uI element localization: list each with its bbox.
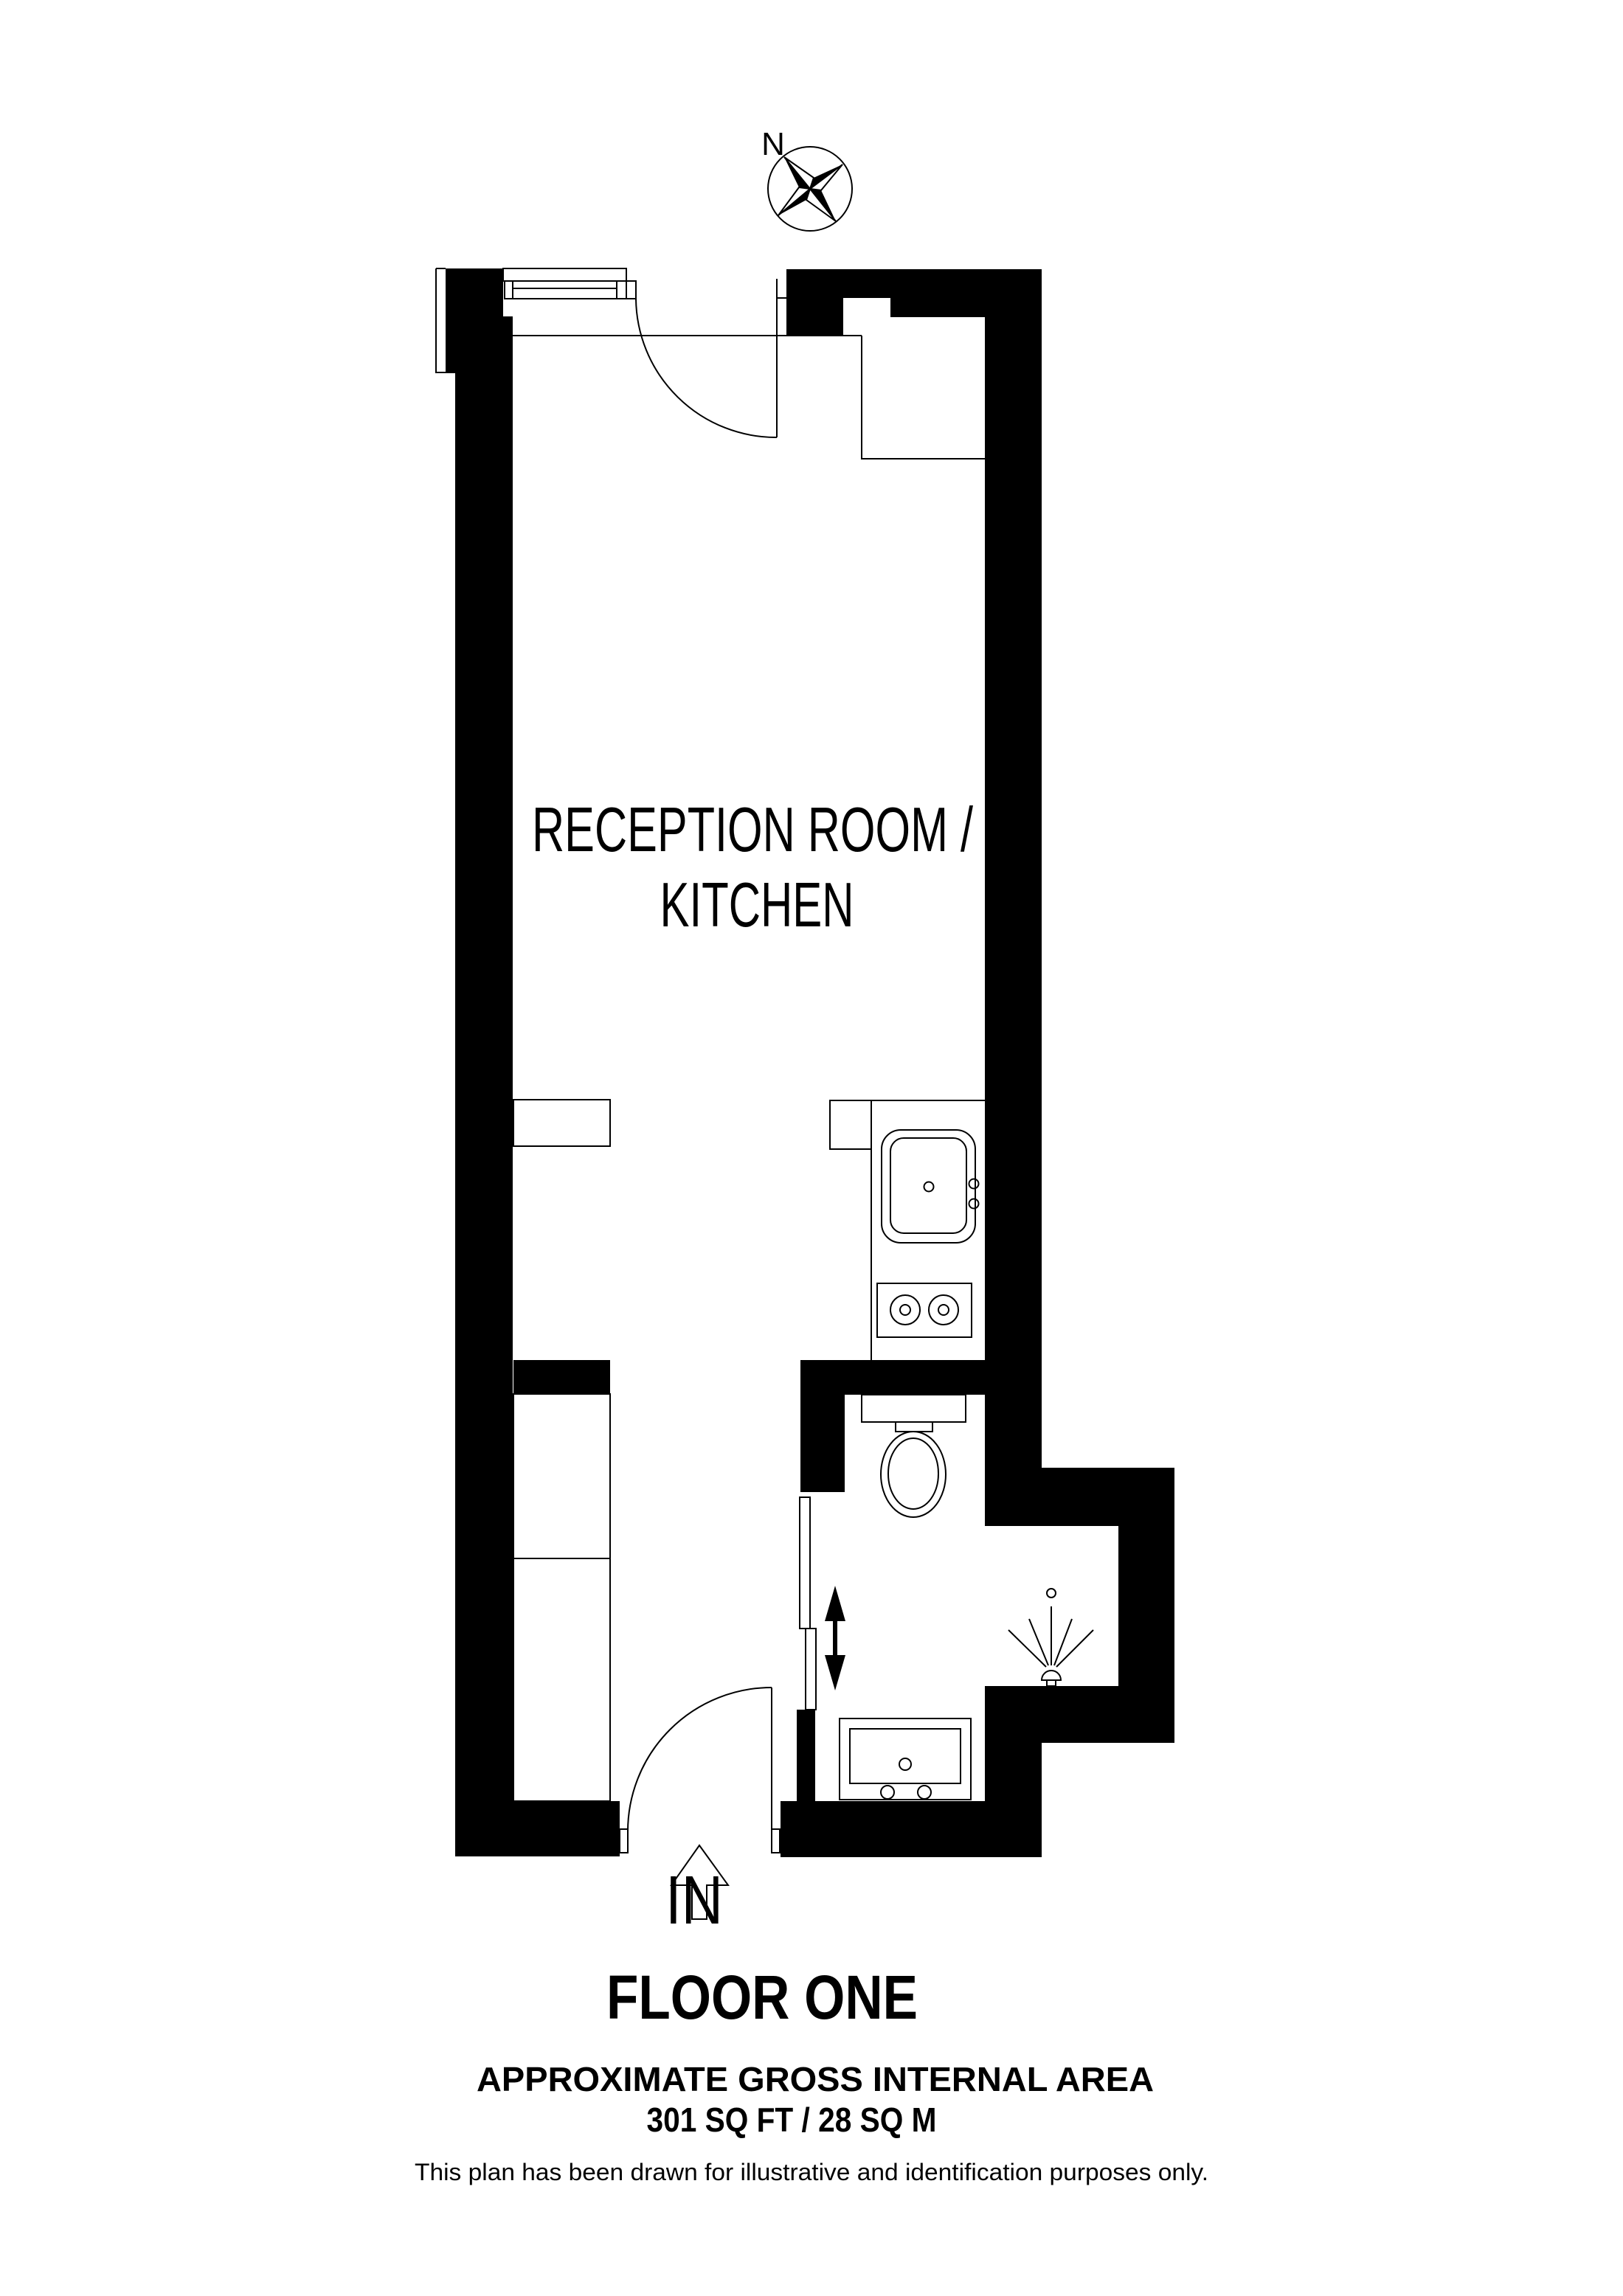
door-jamb [620, 1829, 628, 1853]
wall-wc-left-column [800, 1395, 845, 1492]
sliding-door [800, 1497, 845, 1710]
area-heading: APPROXIMATE GROSS INTERNAL AREA [477, 2060, 1154, 2098]
compass-north-label: N [761, 126, 785, 162]
floor-title: FLOOR ONE [606, 1963, 918, 2032]
wall-strip-above-alcove [890, 298, 985, 317]
floorplan-drawing: N [0, 0, 1623, 2296]
wall-stub-reception-left [513, 1360, 610, 1394]
wall-above-shower [985, 1468, 1174, 1526]
compass-rose-icon: N [761, 126, 852, 231]
closet-lower [513, 1558, 610, 1801]
room-label-line1: RECEPTION ROOM / [532, 795, 973, 865]
wall-shower-right [1118, 1526, 1174, 1686]
kitchen-sink [882, 1130, 979, 1243]
wall-wc-left-lower [797, 1710, 815, 1801]
alcove-boundary-line [862, 336, 985, 459]
room-label-line2: KITCHEN [660, 870, 854, 940]
sliding-door-arrow-icon [825, 1586, 845, 1690]
kitchen-unit-box [830, 1100, 871, 1149]
closet-upper [513, 1394, 610, 1558]
disclaimer-text: This plan has been drawn for illustrativ… [415, 2159, 1208, 2185]
floorplan-page: N [0, 0, 1623, 2296]
top-door [636, 279, 786, 437]
wall-left-top [446, 268, 503, 316]
toilet [862, 1395, 966, 1517]
wall-right-main [985, 298, 1042, 1468]
entrance-label: IN [665, 1862, 723, 1938]
entrance-door-swing-arc [628, 1688, 772, 1831]
door-jamb [772, 1829, 780, 1853]
wall-top-block-left-of-notch [786, 298, 843, 336]
wall-strip-reception-right [800, 1360, 985, 1395]
wall-shower-bottom [985, 1686, 1174, 1743]
shower-head-icon [1042, 1671, 1061, 1680]
wall-top-strip [786, 269, 1042, 298]
sink-tap [969, 1179, 979, 1189]
wall-bottom-left-foot [455, 1801, 620, 1856]
area-value: 301 SQ FT / 28 SQ M [647, 2101, 937, 2139]
wall-left-main [455, 372, 513, 1801]
wall-left-step [446, 316, 513, 372]
bathroom-basin [840, 1718, 971, 1800]
top-door-swing-arc [636, 299, 777, 437]
wall-bottom-right-strip [781, 1801, 1042, 1857]
sink-tap [969, 1199, 979, 1209]
window [503, 268, 636, 299]
shower [1008, 1589, 1093, 1686]
storage-unit-top [513, 1100, 610, 1146]
kitchen-hob [877, 1283, 972, 1337]
